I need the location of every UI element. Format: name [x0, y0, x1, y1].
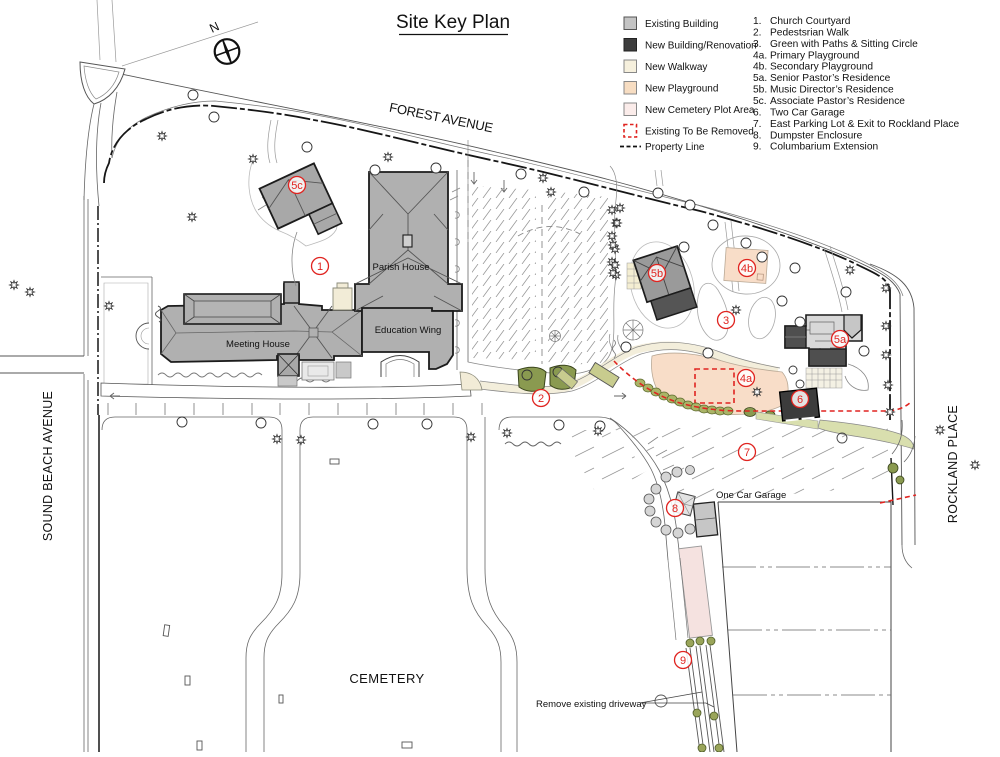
svg-text:5a.: 5a.: [753, 73, 767, 84]
svg-text:6.: 6.: [753, 107, 762, 118]
svg-text:ROCKLAND PLACE: ROCKLAND PLACE: [946, 405, 960, 523]
svg-text:Music Director’s Residence: Music Director’s Residence: [770, 85, 894, 96]
svg-text:4b: 4b: [741, 263, 753, 275]
svg-text:Green with Paths & Sitting Cir: Green with Paths & Sitting Circle: [770, 39, 918, 50]
svg-text:4b.: 4b.: [753, 62, 767, 73]
svg-text:5a: 5a: [834, 334, 847, 346]
svg-text:SOUND BEACH AVENUE: SOUND BEACH AVENUE: [41, 391, 55, 541]
svg-text:Education Wing: Education Wing: [375, 325, 442, 336]
svg-text:1: 1: [317, 261, 323, 273]
svg-text:3.: 3.: [753, 39, 762, 50]
svg-text:5b: 5b: [651, 268, 663, 280]
svg-text:5c.: 5c.: [753, 96, 767, 107]
svg-text:3: 3: [723, 315, 729, 327]
svg-text:9: 9: [680, 655, 686, 667]
svg-text:Primary Playground: Primary Playground: [770, 50, 860, 61]
svg-text:CEMETERY: CEMETERY: [349, 671, 424, 686]
svg-text:Dumpster Enclosure: Dumpster Enclosure: [770, 130, 863, 141]
svg-text:7.: 7.: [753, 119, 762, 130]
svg-text:Senior Pastor’s Residence: Senior Pastor’s Residence: [770, 73, 891, 84]
svg-text:Church Courtyard: Church Courtyard: [770, 16, 851, 27]
svg-text:9.: 9.: [753, 142, 762, 153]
svg-text:4a.: 4a.: [753, 50, 767, 61]
svg-text:Existing To Be Removed: Existing To Be Removed: [645, 127, 754, 138]
svg-text:2.: 2.: [753, 27, 762, 38]
svg-text:5b.: 5b.: [753, 85, 767, 96]
svg-text:New Cemetery Plot Area: New Cemetery Plot Area: [645, 105, 755, 116]
svg-text:Pedestsrian Walk: Pedestsrian Walk: [770, 27, 850, 38]
svg-text:7: 7: [744, 447, 750, 459]
svg-text:8.: 8.: [753, 130, 762, 141]
svg-text:Meeting House: Meeting House: [226, 339, 290, 350]
svg-text:Secondary Playground: Secondary Playground: [770, 62, 873, 73]
svg-text:2: 2: [538, 393, 544, 405]
svg-text:5c: 5c: [291, 180, 303, 192]
svg-text:Property Line: Property Line: [645, 142, 705, 153]
svg-text:4a: 4a: [740, 373, 753, 385]
svg-text:New Walkway: New Walkway: [645, 62, 707, 73]
svg-text:Parish House: Parish House: [372, 262, 429, 273]
svg-text:East Parking Lot & Exit to Roc: East Parking Lot & Exit to Rockland Plac…: [770, 119, 959, 130]
svg-text:New Building/Renovation: New Building/Renovation: [645, 41, 757, 52]
svg-text:6: 6: [797, 394, 803, 406]
svg-text:Columbarium Extension: Columbarium Extension: [770, 142, 878, 153]
svg-text:Site Key Plan: Site Key Plan: [396, 12, 510, 33]
svg-text:Remove existing driveway: Remove existing driveway: [536, 699, 647, 710]
svg-text:Two Car Garage: Two Car Garage: [770, 107, 845, 118]
svg-text:8: 8: [672, 503, 678, 515]
svg-text:New Playground: New Playground: [645, 84, 718, 95]
svg-text:One Car Garage: One Car Garage: [716, 490, 786, 501]
svg-text:1.: 1.: [753, 16, 762, 27]
svg-text:Existing Building: Existing Building: [645, 19, 718, 30]
svg-text:Associate Pastor’s Residence: Associate Pastor’s Residence: [770, 96, 905, 107]
